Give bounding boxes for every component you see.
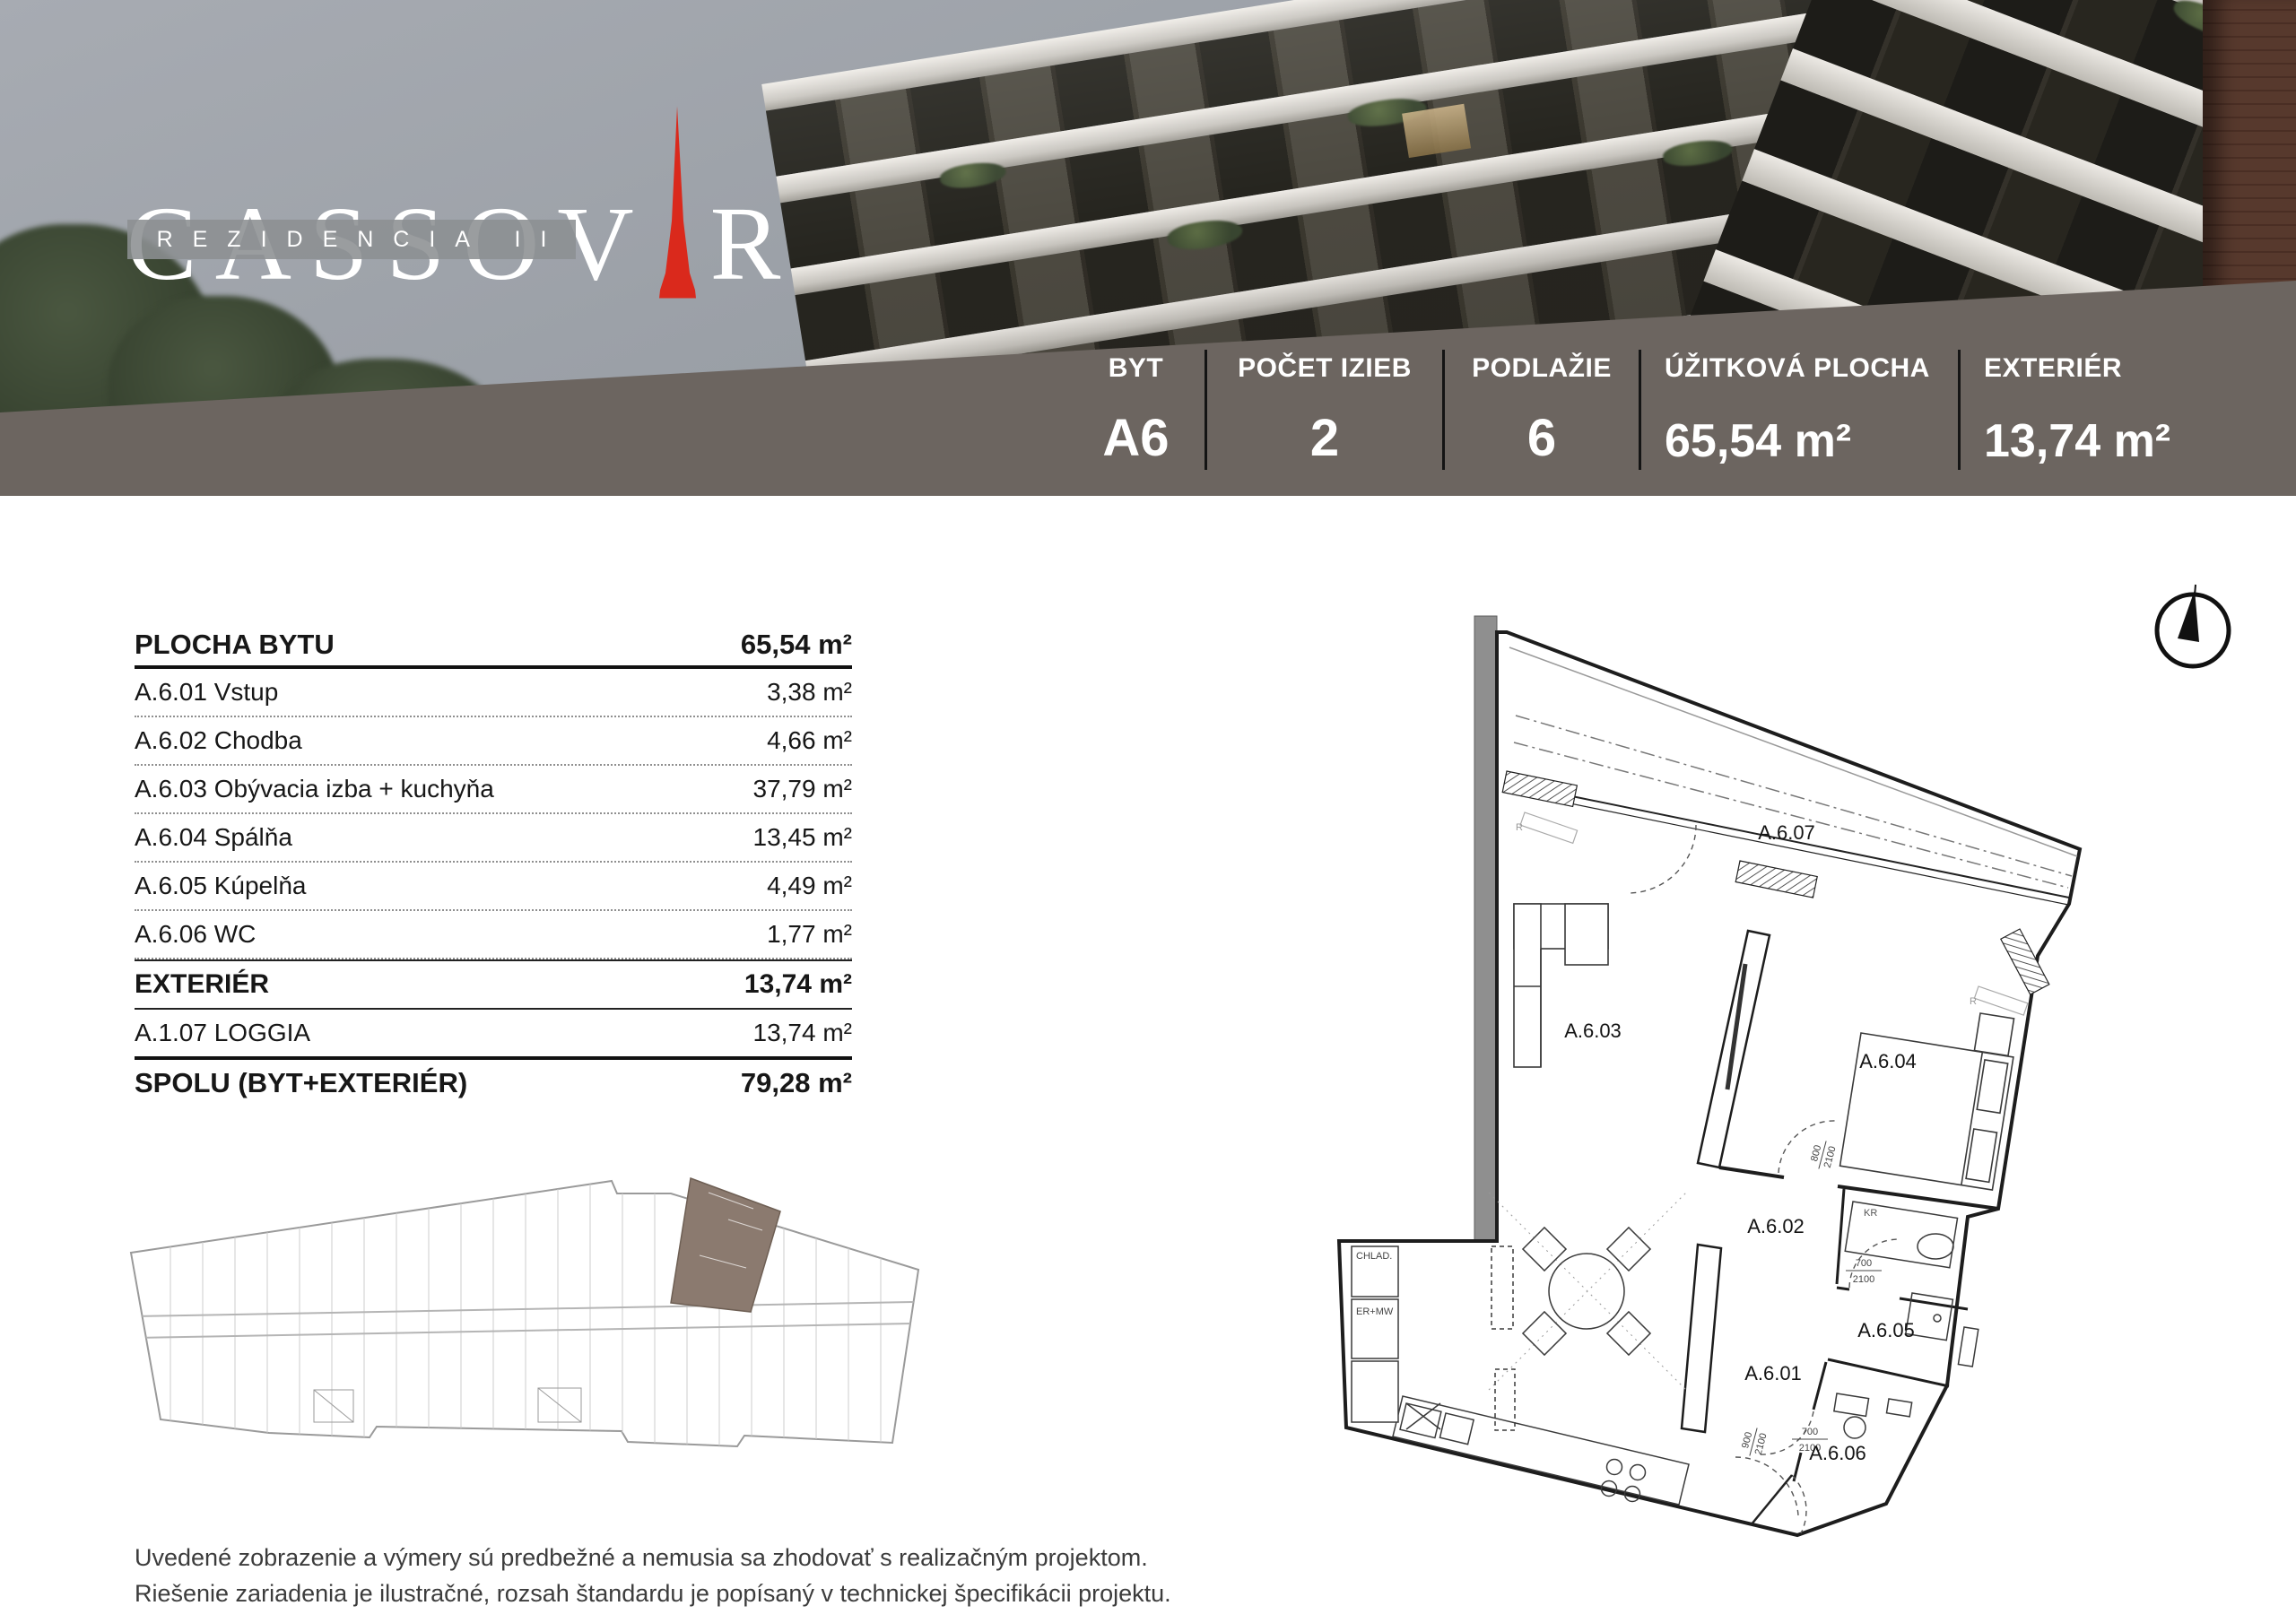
table-row: A.6.01 Vstup 3,38 m²: [135, 669, 852, 717]
info-cell-byt: BYT A6: [1067, 350, 1205, 470]
row-value: 37,79 m²: [753, 775, 853, 803]
room-label-wc: A.6.06: [1809, 1442, 1866, 1464]
row-value: 4,49 m²: [767, 872, 852, 900]
unit-info-bar: BYT A6 POČET IZIEB 2 PODLAŽIE 6 ÚŽITKOVÁ…: [1067, 350, 2260, 470]
disclaimer-line2: Riešenie zariadenia je ilustračné, rozsa…: [135, 1580, 1171, 1607]
table-exterior-row: EXTERIÉR 13,74 m²: [135, 959, 852, 1010]
row-label: A.6.05 Kúpelňa: [135, 872, 307, 900]
brand-wordmark: CASSOV R: [126, 106, 798, 297]
table-row: A.6.03 Obývacia izba + kuchyňa 37,79 m²: [135, 766, 852, 814]
table-row: A.6.06 WC 1,77 m²: [135, 911, 852, 959]
row-value: 79,28 m²: [741, 1067, 852, 1099]
disclaimer-line1: Uvedené zobrazenie a výmery sú predbežné…: [135, 1544, 1148, 1571]
oven-label: ER+MW: [1356, 1306, 1394, 1317]
room-label-entry: A.6.01: [1744, 1362, 1802, 1384]
row-value: 65,54 m²: [741, 629, 852, 661]
disclaimer-text: Uvedené zobrazenie a výmery sú predbežné…: [135, 1540, 1171, 1611]
table-row: A.6.02 Chodba 4,66 m²: [135, 717, 852, 766]
brand-subtitle: REZIDENCIA II: [127, 220, 576, 259]
area-table: PLOCHA BYTU 65,54 m² A.6.01 Vstup 3,38 m…: [135, 624, 852, 1107]
row-label: PLOCHA BYTU: [135, 629, 335, 661]
row-value: 13,45 m²: [753, 823, 853, 852]
info-label: PODLAŽIE: [1472, 353, 1612, 384]
info-cell-exterior: EXTERIÉR 13,74 m²: [1958, 350, 2260, 470]
row-label: A.6.06 WC: [135, 920, 256, 949]
row-label: SPOLU (BYT+EXTERIÉR): [135, 1067, 467, 1099]
radiator-label: R: [1970, 996, 1977, 1007]
info-value: 65,54 m²: [1665, 418, 1851, 464]
neighbour-wall: [1474, 616, 1497, 1241]
row-label: EXTERIÉR: [135, 969, 269, 1000]
row-label: A.6.01 Vstup: [135, 678, 278, 707]
row-label: A.6.03 Obývacia izba + kuchyňa: [135, 775, 494, 803]
table-total-row: SPOLU (BYT+EXTERIÉR) 79,28 m²: [135, 1060, 852, 1107]
row-label: A.6.02 Chodba: [135, 726, 302, 755]
overview-floorplan: [126, 1161, 933, 1457]
room-label-living: A.6.03: [1564, 1020, 1622, 1042]
row-label: A.6.04 Spálňa: [135, 823, 292, 852]
info-value: 13,74 m²: [1984, 418, 2170, 464]
row-value: 3,38 m²: [767, 678, 852, 707]
room-label-bath: A.6.05: [1857, 1319, 1915, 1341]
svg-text:2100: 2100: [1853, 1274, 1874, 1285]
info-cell-floor: PODLAŽIE 6: [1442, 350, 1639, 470]
row-value: 13,74 m²: [753, 1019, 853, 1047]
info-cell-rooms: POČET IZIEB 2: [1205, 350, 1442, 470]
detailed-floorplan: R R: [1300, 574, 2251, 1605]
row-label: A.1.07 LOGGIA: [135, 1019, 310, 1047]
info-label: EXTERIÉR: [1984, 353, 2122, 384]
compass-icon: [2157, 585, 2229, 666]
table-row: A.6.05 Kúpelňa 4,49 m²: [135, 863, 852, 911]
info-value: 6: [1527, 412, 1556, 464]
room-label-hall: A.6.02: [1747, 1215, 1805, 1237]
table-row: A.1.07 LOGGIA 13,74 m²: [135, 1010, 852, 1060]
info-label: POČET IZIEB: [1238, 353, 1412, 384]
svg-text:700: 700: [1856, 1258, 1872, 1269]
info-value: 2: [1310, 412, 1339, 464]
room-label-bedroom: A.6.04: [1859, 1050, 1917, 1072]
row-value: 4,66 m²: [767, 726, 852, 755]
hero-header: CASSOV R REZIDENCIA II BYT A6 POČET IZIE…: [0, 0, 2296, 496]
info-label: BYT: [1109, 353, 1164, 384]
table-row: A.6.04 Spálňa 13,45 m²: [135, 814, 852, 863]
info-cell-area: ÚŽITKOVÁ PLOCHA 65,54 m²: [1639, 350, 1958, 470]
info-label: ÚŽITKOVÁ PLOCHA: [1665, 353, 1930, 384]
apartment-datasheet: CASSOV R REZIDENCIA II BYT A6 POČET IZIE…: [0, 0, 2296, 1623]
table-header-row: PLOCHA BYTU 65,54 m²: [135, 624, 852, 669]
spire-icon: [654, 106, 701, 299]
svg-text:700: 700: [1802, 1427, 1818, 1437]
brand-word-right: R: [710, 191, 799, 297]
fridge-label: CHLAD.: [1356, 1251, 1392, 1262]
radiator-label: R: [1516, 822, 1523, 833]
room-label-loggia: A.6.07: [1758, 821, 1815, 844]
info-value: A6: [1102, 412, 1169, 464]
row-value: 1,77 m²: [767, 920, 852, 949]
row-value: 13,74 m²: [744, 969, 852, 1000]
wardrobe-label: KR: [1864, 1208, 1877, 1219]
